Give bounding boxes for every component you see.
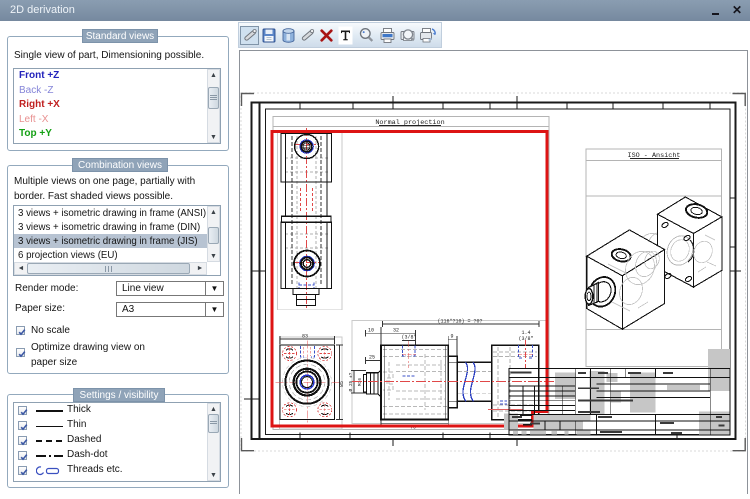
svg-text:(3/8": (3/8" [518, 336, 533, 342]
svg-text:9: 9 [450, 334, 453, 340]
svg-text:83: 83 [302, 334, 308, 340]
svg-text:85: 85 [339, 381, 345, 387]
svg-text:10: 10 [368, 328, 374, 334]
svg-text:Ø 25 ±?: Ø 25 ±? [347, 372, 354, 391]
svg-text:M16: M16 [357, 378, 363, 386]
svg-text:32: 32 [393, 328, 399, 334]
svg-text:(3/8": (3/8" [401, 335, 416, 341]
svg-text:25: 25 [369, 355, 375, 361]
svg-text:(116*?10) = ?0?: (116*?10) = ?0? [437, 319, 482, 325]
svg-text:1.4: 1.4 [521, 330, 530, 336]
